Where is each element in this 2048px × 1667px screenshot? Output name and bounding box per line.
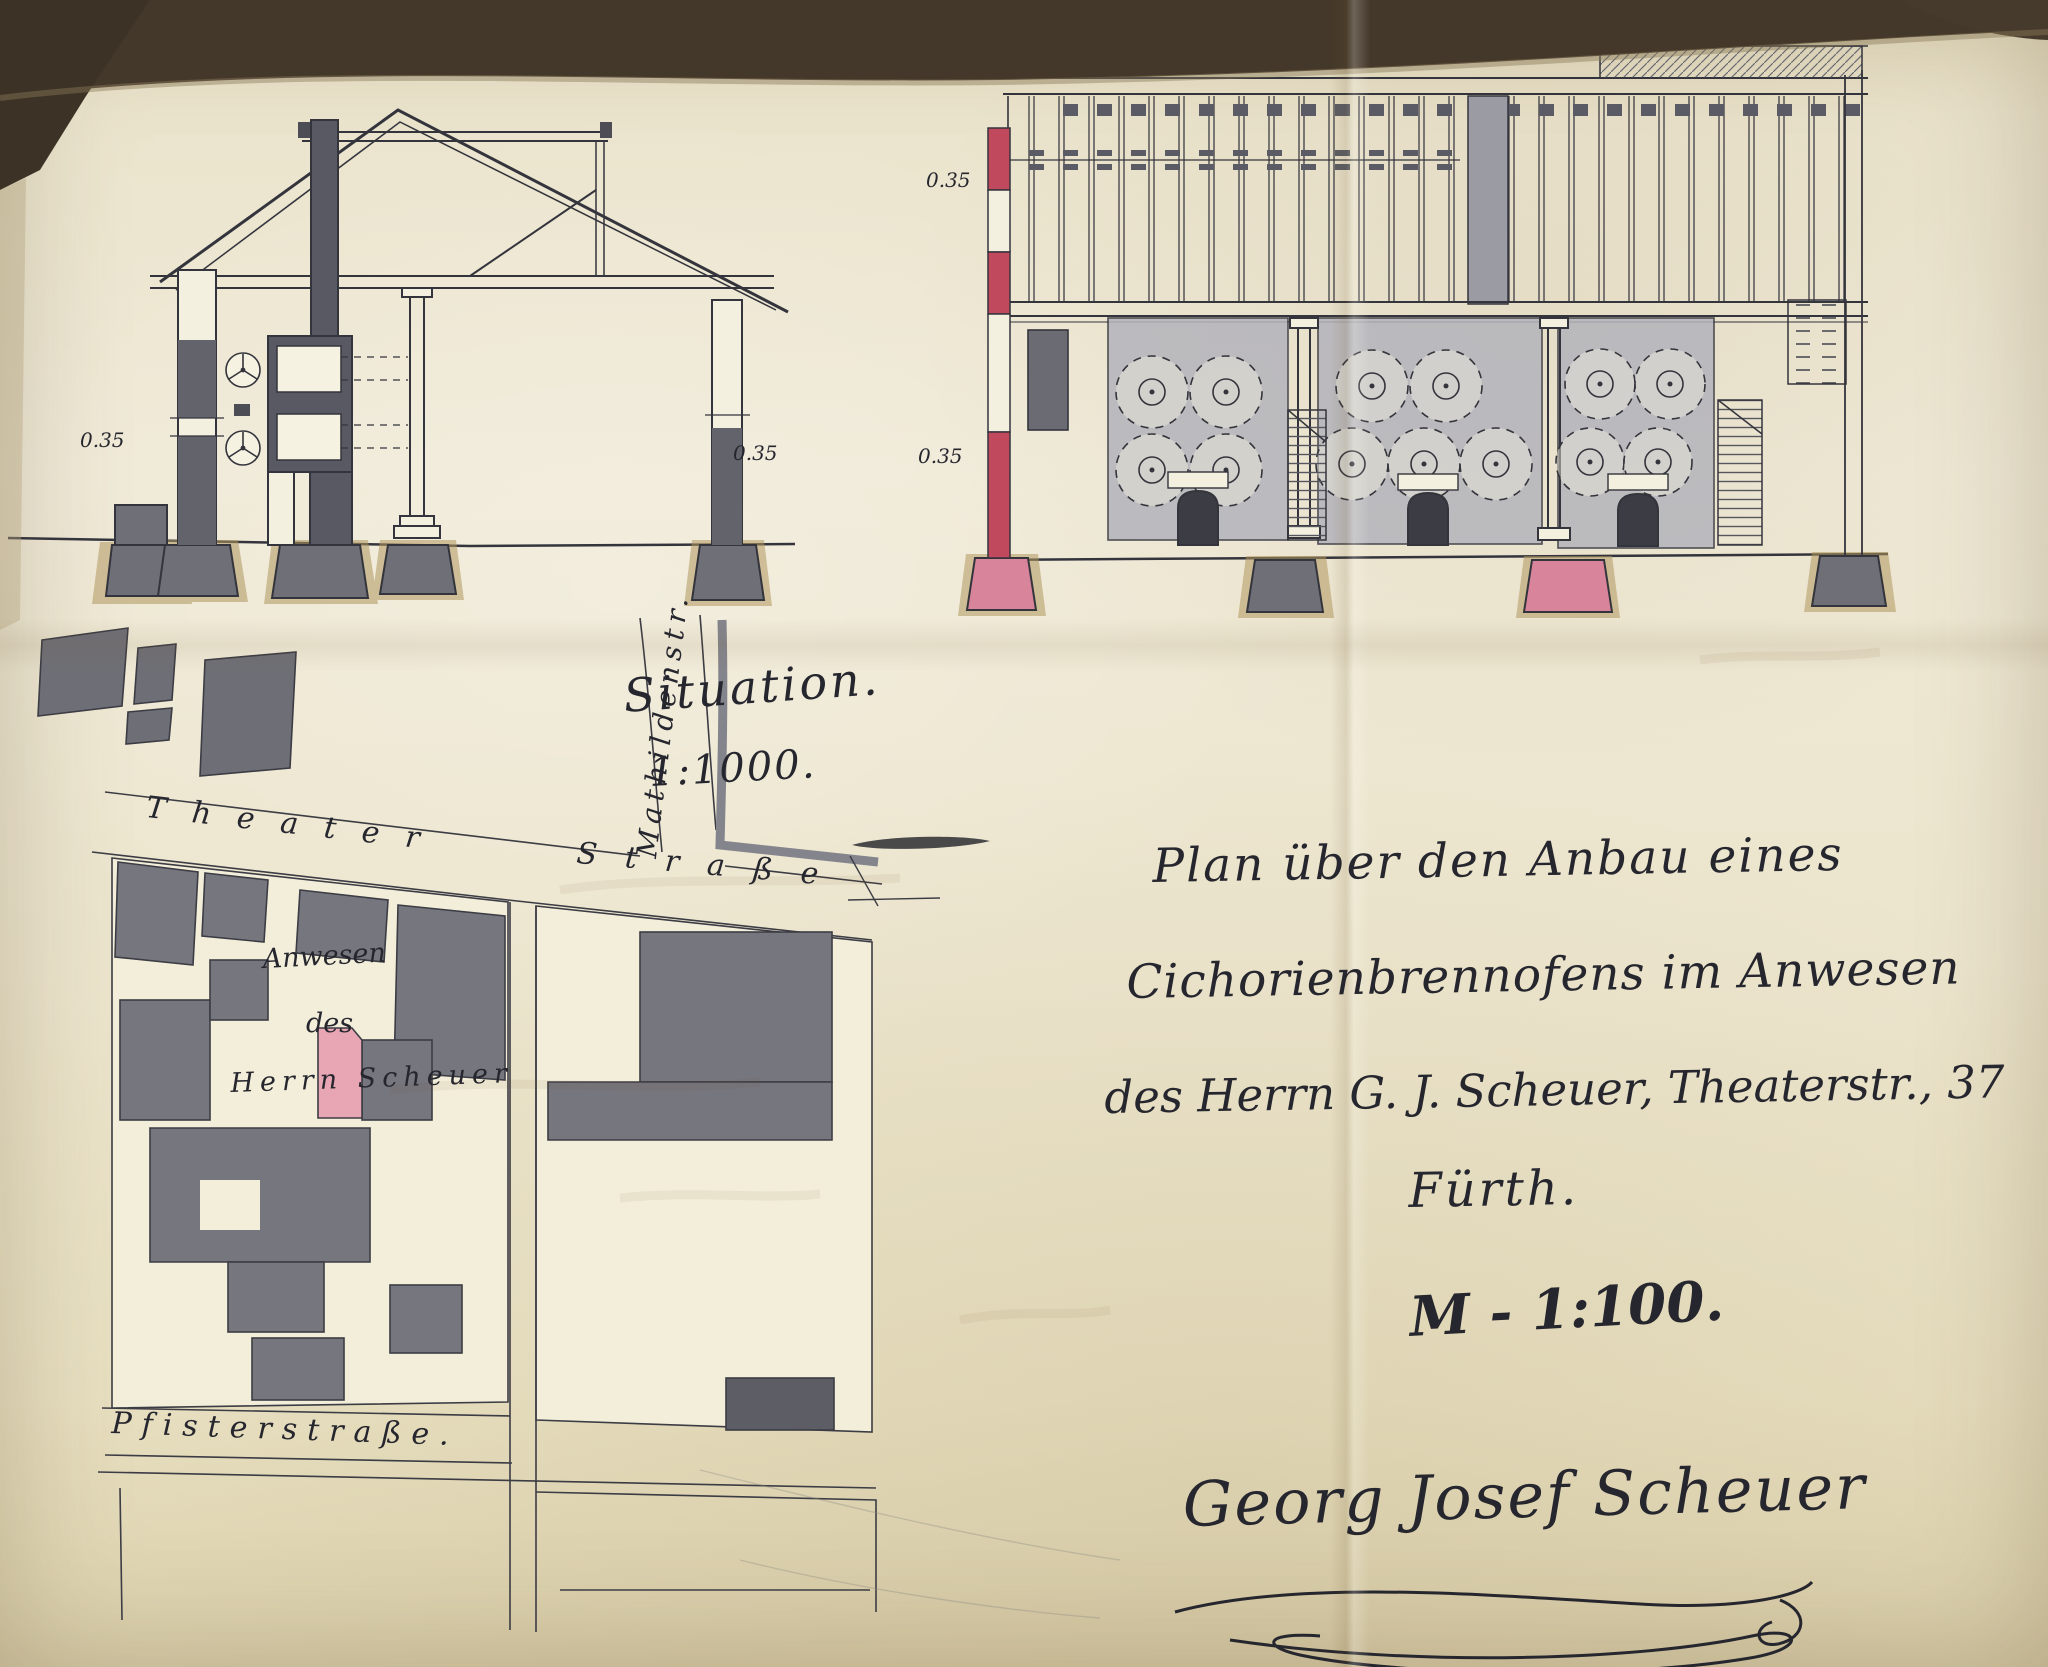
measuring-rod — [988, 128, 1010, 558]
ink-smudge — [848, 837, 990, 906]
ventilator-icon — [226, 431, 260, 465]
right-city-block — [536, 906, 872, 1432]
staircase — [1288, 410, 1326, 540]
staircase — [1718, 400, 1762, 545]
property-label-line2: des — [306, 1010, 353, 1038]
dimension-label: 0.35 — [80, 430, 125, 451]
left-wall — [170, 270, 224, 545]
scanned-plan-page: 0.35 0.35 0.35 0.35 Situation. 1:1000. T… — [0, 0, 2048, 1667]
street-continuation — [510, 902, 536, 1632]
center-column — [394, 288, 440, 538]
fire-door — [1408, 493, 1448, 545]
ventilator-icon — [226, 353, 260, 387]
cross-section-drawing — [8, 110, 795, 606]
oven-box — [268, 336, 408, 545]
timber-frame-band — [1003, 46, 1868, 304]
dashed-masonry-block — [1788, 300, 1846, 384]
title-line-1: Plan über den Anbau eines — [1152, 830, 1844, 891]
footing-shadows — [958, 552, 1896, 618]
building-cluster-nw — [38, 628, 296, 776]
elevation-drawing — [958, 46, 1896, 618]
dimension-label: 0.35 — [918, 446, 963, 467]
dimension-label: 0.35 — [926, 170, 971, 191]
ground-line — [982, 554, 1888, 560]
signature-text: Georg Josef Scheuer — [1182, 1454, 1867, 1537]
window-opening — [1028, 330, 1068, 430]
right-wall — [705, 300, 750, 545]
property-label-line1: Anwesen — [262, 940, 387, 975]
scale-note: M - 1:100. — [1408, 1272, 1725, 1346]
title-line-4: Fürth. — [1408, 1163, 1579, 1216]
fire-door — [1618, 494, 1658, 546]
footings — [967, 556, 1886, 612]
floor-beam — [1003, 302, 1868, 316]
flue-damper — [234, 404, 250, 416]
roof-truss — [150, 110, 788, 312]
signature-flourish — [1175, 1582, 1812, 1667]
dimension-label: 0.35 — [733, 443, 778, 464]
fire-door — [1178, 491, 1218, 545]
pencil-marks — [700, 1470, 1120, 1618]
chimney-flue — [311, 120, 338, 336]
